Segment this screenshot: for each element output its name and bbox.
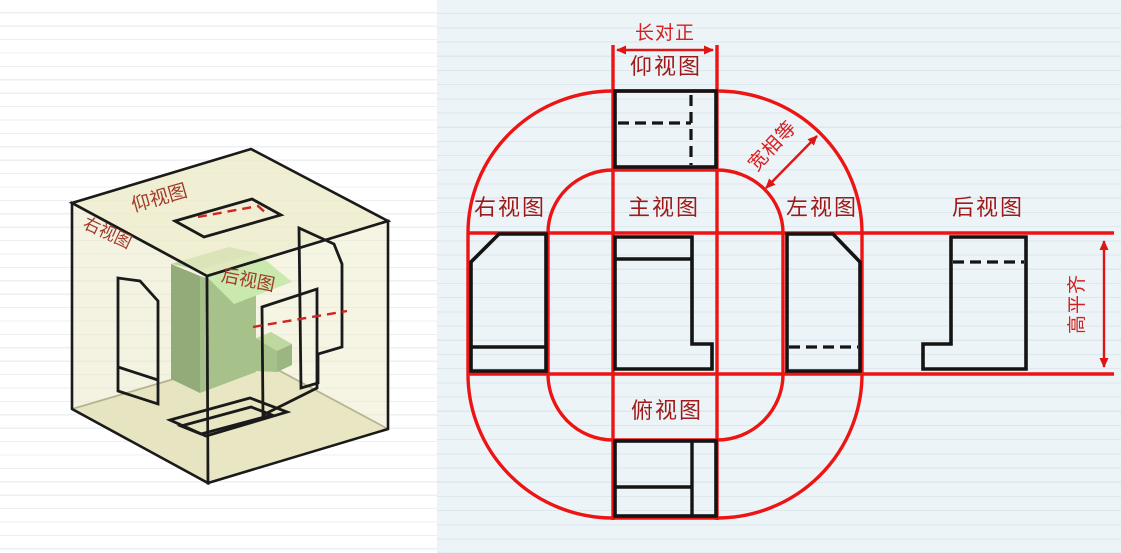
top-view-drawing — [615, 441, 716, 516]
worksheet-canvas: 长对正 宽相等 高平齐 仰视图 主视图 右视图 左视图 后视图 俯视图 — [0, 0, 1121, 553]
left-view-drawing — [787, 234, 860, 371]
top-view-outline — [615, 441, 716, 516]
height-alignment-dimension: 高平齐 — [1066, 241, 1104, 367]
orthographic-views — [471, 91, 1026, 516]
projection-diagram: 长对正 宽相等 高平齐 仰视图 主视图 右视图 左视图 后视图 俯视图 — [0, 0, 1121, 553]
bottom-view-drawing — [615, 91, 716, 167]
rear-view-drawing — [923, 237, 1026, 369]
rear-view-outline — [923, 237, 1026, 369]
length-alignment-dimension: 长对正 — [617, 22, 713, 50]
label-right-view: 右视图 — [474, 195, 546, 220]
right-view-drawing — [471, 234, 546, 371]
width-equality-dimension: 宽相等 — [744, 116, 817, 188]
isometric-inset: 仰视图 右视图 后视图 — [72, 149, 499, 483]
length-alignment-text: 长对正 — [635, 22, 695, 44]
outer-unfolding-loop — [468, 91, 862, 518]
height-alignment-text: 高平齐 — [1066, 274, 1088, 334]
width-equality-text: 宽相等 — [744, 116, 801, 175]
label-rear-view: 后视图 — [952, 195, 1024, 220]
label-left-view: 左视图 — [786, 195, 858, 220]
label-front-view: 主视图 — [628, 195, 700, 220]
left-view-outline — [787, 234, 860, 371]
label-top-view: 俯视图 — [631, 398, 703, 423]
bottom-view-outline — [615, 91, 716, 167]
front-view-drawing — [615, 237, 712, 369]
label-bottom-view: 仰视图 — [630, 54, 702, 79]
projection-relation-lines — [468, 45, 1114, 520]
front-view-outline — [615, 237, 712, 369]
right-view-outline — [471, 234, 546, 371]
